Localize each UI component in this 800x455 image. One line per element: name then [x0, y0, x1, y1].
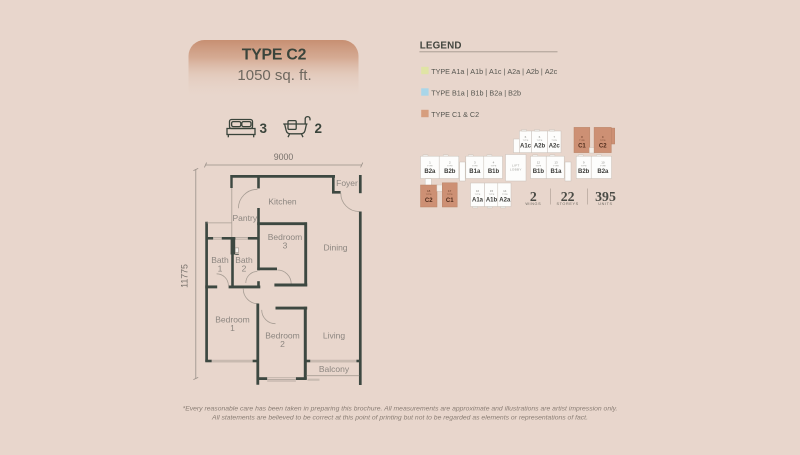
- svg-text:1: 1: [218, 264, 223, 274]
- svg-text:A1c: A1c: [520, 143, 532, 149]
- svg-text:TYPE C1 & C2: TYPE C1 & C2: [431, 110, 479, 119]
- svg-text:TYPE: TYPE: [427, 165, 433, 167]
- svg-text:Pantry: Pantry: [233, 213, 258, 223]
- svg-text:WINGS: WINGS: [525, 202, 541, 206]
- svg-text:2: 2: [280, 339, 285, 349]
- svg-text:10: 10: [601, 160, 605, 164]
- svg-text:TYPE A1a | A1b | A1c | A: TYPE A1a | A1b | A1c | A2a | A2b | A2c: [431, 67, 557, 76]
- svg-text:18: 18: [427, 189, 431, 193]
- svg-text:TYPE: TYPE: [579, 140, 585, 142]
- svg-text:LEGEND: LEGEND: [420, 41, 462, 52]
- svg-text:TYPE: TYPE: [600, 140, 606, 142]
- svg-text:A1a: A1a: [472, 197, 484, 203]
- svg-text:A2a: A2a: [499, 197, 511, 203]
- svg-text:C2: C2: [599, 143, 607, 149]
- svg-text:TYPE: TYPE: [537, 140, 543, 142]
- svg-text:TYPE: TYPE: [491, 165, 497, 167]
- svg-text:16: 16: [476, 189, 480, 193]
- svg-text:13: 13: [554, 160, 558, 164]
- svg-text:B2b: B2b: [444, 169, 456, 175]
- svg-text:Balcony: Balcony: [319, 364, 350, 374]
- svg-text:A2c: A2c: [549, 143, 561, 149]
- svg-text:STOREYS: STOREYS: [556, 202, 578, 206]
- svg-text:TYPE: TYPE: [426, 194, 432, 196]
- svg-text:3: 3: [283, 241, 288, 251]
- svg-text:1: 1: [230, 323, 235, 333]
- svg-text:TYPE: TYPE: [523, 140, 529, 142]
- svg-text:LOBBY: LOBBY: [510, 168, 522, 172]
- svg-text:C2: C2: [425, 198, 433, 204]
- svg-text:B1b: B1b: [488, 169, 500, 175]
- svg-text:14: 14: [503, 189, 507, 193]
- svg-text:B1a: B1a: [550, 169, 562, 175]
- svg-text:C1: C1: [446, 198, 454, 204]
- svg-text:2: 2: [242, 264, 247, 274]
- svg-text:9000: 9000: [274, 152, 294, 162]
- svg-text:TYPE: TYPE: [551, 140, 557, 142]
- svg-text:11775: 11775: [180, 264, 190, 288]
- svg-text:TYPE: TYPE: [502, 194, 508, 196]
- svg-text:TYPE: TYPE: [600, 165, 606, 167]
- svg-text:TYPE C2: TYPE C2: [242, 47, 307, 64]
- svg-text:B1a: B1a: [469, 169, 481, 175]
- svg-text:1050 sq. ft.: 1050 sq. ft.: [237, 67, 311, 84]
- svg-text:TYPE: TYPE: [553, 165, 559, 167]
- svg-text:TYPE: TYPE: [447, 165, 453, 167]
- svg-text:B2b: B2b: [578, 169, 590, 175]
- svg-text:15: 15: [490, 189, 494, 193]
- svg-text:17: 17: [448, 189, 452, 193]
- svg-text:3: 3: [260, 121, 268, 136]
- svg-text:B1b: B1b: [533, 169, 545, 175]
- svg-text:TYPE: TYPE: [536, 165, 542, 167]
- svg-text:TYPE: TYPE: [447, 194, 453, 196]
- svg-text:A2b: A2b: [534, 143, 546, 149]
- svg-text:TYPE: TYPE: [472, 165, 478, 167]
- svg-text:All statements are believed to: All statements are believed to be correc…: [211, 415, 588, 422]
- svg-text:TYPE: TYPE: [581, 165, 587, 167]
- svg-text:TYPE B1a | B1b | B2a | B: TYPE B1a | B1b | B2a | B2b: [431, 88, 521, 97]
- svg-text:Dining: Dining: [323, 243, 347, 253]
- svg-text:TYPE: TYPE: [475, 194, 481, 196]
- svg-text:Kitchen: Kitchen: [268, 197, 297, 207]
- svg-text:C1: C1: [578, 143, 586, 149]
- svg-text:B2a: B2a: [597, 169, 609, 175]
- svg-text:Foyer: Foyer: [336, 178, 358, 188]
- svg-text:A1b: A1b: [486, 197, 498, 203]
- svg-text:B2a: B2a: [424, 169, 436, 175]
- svg-text:TYPE: TYPE: [489, 194, 495, 196]
- svg-text:Living: Living: [323, 331, 345, 341]
- svg-text:2: 2: [315, 121, 323, 136]
- svg-text:*Every reasonable care has bee: *Every reasonable care has been taken in…: [183, 406, 618, 413]
- svg-text:UNITS: UNITS: [598, 202, 612, 206]
- svg-text:12: 12: [537, 160, 541, 164]
